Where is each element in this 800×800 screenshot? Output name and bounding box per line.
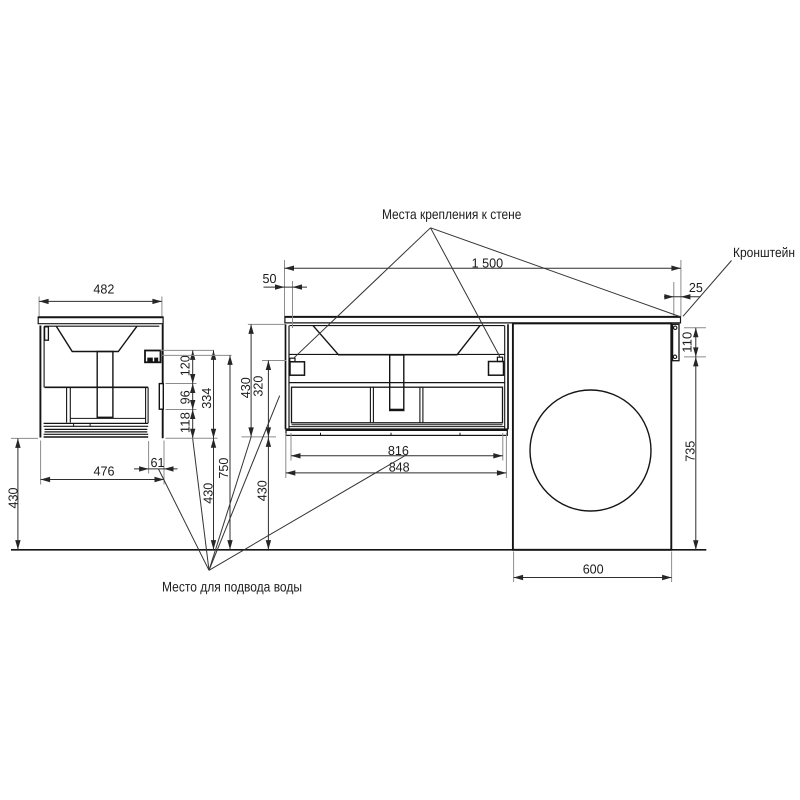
svg-text:96: 96 — [178, 390, 193, 404]
svg-text:848: 848 — [389, 460, 410, 475]
svg-text:Место для подвода воды: Место для подвода воды — [162, 578, 302, 594]
svg-text:320: 320 — [251, 376, 266, 397]
svg-text:476: 476 — [94, 464, 115, 479]
svg-text:600: 600 — [583, 562, 604, 577]
svg-text:25: 25 — [689, 280, 703, 295]
svg-text:110: 110 — [679, 332, 694, 353]
svg-text:50: 50 — [263, 271, 277, 286]
svg-text:482: 482 — [93, 282, 114, 297]
svg-text:430: 430 — [255, 480, 270, 501]
svg-text:430: 430 — [6, 488, 21, 509]
svg-text:334: 334 — [199, 388, 214, 409]
svg-text:750: 750 — [216, 458, 231, 479]
svg-text:735: 735 — [683, 441, 698, 462]
svg-text:120: 120 — [178, 355, 193, 376]
svg-text:61: 61 — [151, 455, 165, 470]
svg-text:1 500: 1 500 — [472, 256, 504, 271]
svg-text:Кронштейн: Кронштейн — [733, 245, 795, 260]
svg-text:Места крепления к стене: Места крепления к стене — [382, 206, 522, 222]
svg-text:430: 430 — [200, 483, 215, 504]
svg-text:118: 118 — [178, 412, 193, 433]
